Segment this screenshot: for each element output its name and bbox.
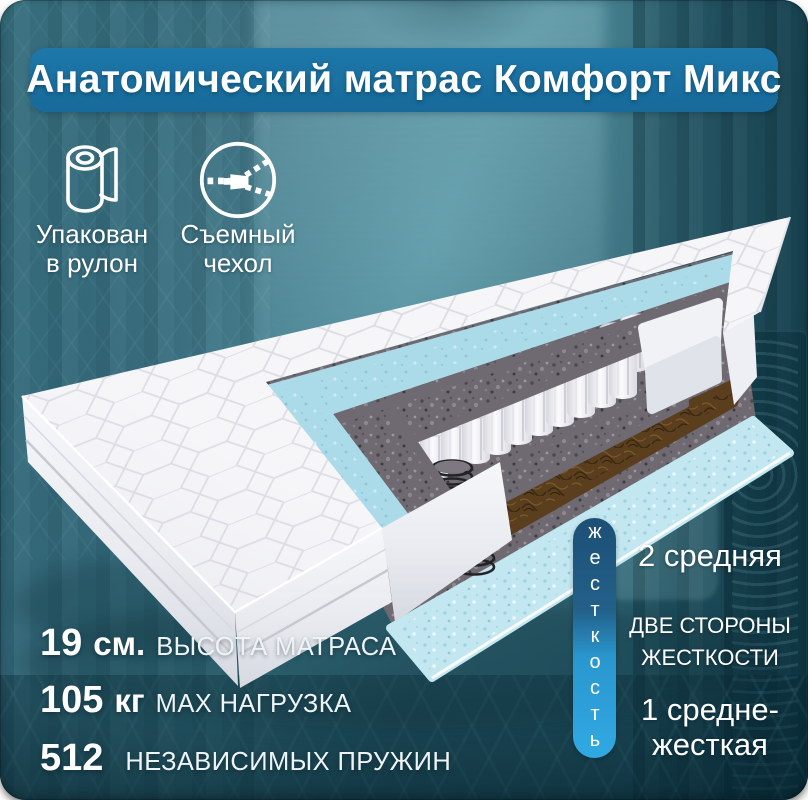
hardness-note-line: ЖЕСТКОСТИ [618, 642, 802, 674]
stat-label: ВЫСОТА МАТРАСА [156, 633, 396, 662]
stat-height: 19 см. ВЫСОТА МАТРАСА [40, 622, 396, 665]
badge-rolled-pack: Упакован в рулон [26, 140, 158, 278]
stat-value: 105 [40, 679, 103, 722]
hardness-side-line: жесткая [618, 727, 802, 762]
stat-value: 19 [40, 622, 82, 665]
hardness-side-2: 2 средняя [618, 538, 802, 574]
stat-value: 512 [40, 737, 103, 780]
badge-label-line: в рулон [46, 249, 138, 278]
badge-removable-cover: Съемный чехол [172, 140, 304, 278]
hardness-side-1: 1 средне- жесткая [618, 692, 802, 762]
roll-icon [57, 140, 127, 220]
page-title: Анатомический матрас Комфорт Микс [26, 58, 782, 102]
stat-label: MAX НАГРУЗКА [156, 690, 352, 719]
badge-label-line: Упакован [36, 220, 148, 249]
hardness-note-line: ДВЕ СТОРОНЫ [618, 610, 802, 642]
stat-unit: см. [93, 625, 145, 663]
stat-springs-count: 512 НЕЗАВИСИМЫХ ПРУЖИН [40, 737, 451, 780]
hardness-two-sides-note: ДВЕ СТОРОНЫ ЖЕСТКОСТИ [618, 610, 802, 674]
zipper-icon [198, 140, 278, 220]
feature-badges: Упакован в рулон Съемный чехол [26, 140, 304, 278]
product-card: Анатомический матрас Комфорт Микс Упаков… [0, 0, 808, 800]
badge-label-line: Съемный [181, 220, 296, 249]
stat-unit: кг [114, 682, 144, 720]
stat-max-load: 105 кг MAX НАГРУЗКА [40, 679, 351, 722]
hardness-scale-label: жесткость [583, 521, 606, 755]
stat-label: НЕЗАВИСИМЫХ ПРУЖИН [125, 748, 451, 777]
title-banner: Анатомический матрас Комфорт Микс [30, 48, 778, 112]
hardness-scale-bar: жесткость [573, 518, 616, 758]
badge-label-line: чехол [203, 249, 272, 278]
hardness-side-line: 1 средне- [618, 692, 802, 727]
